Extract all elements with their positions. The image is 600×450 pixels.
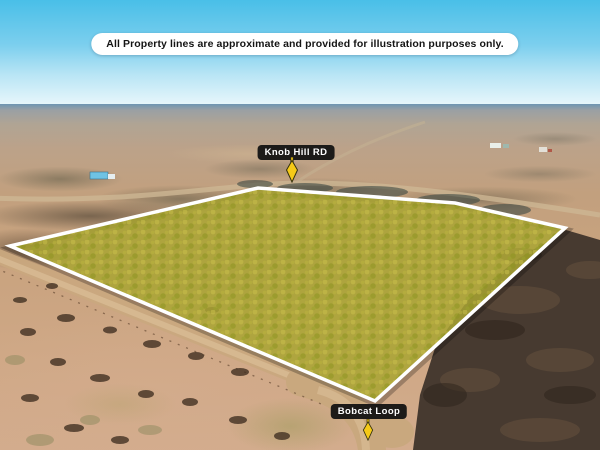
bobcat-loop-marker-icon	[361, 419, 375, 441]
road-label-bobcat-loop: Bobcat Loop	[331, 404, 407, 419]
knob-hill-rd-marker-icon	[284, 157, 300, 183]
disclaimer-banner: All Property lines are approximate and p…	[91, 33, 518, 55]
road-widening	[370, 416, 414, 448]
aerial-property-photo: All Property lines are approximate and p…	[0, 0, 600, 450]
scene-overlay	[0, 0, 600, 450]
